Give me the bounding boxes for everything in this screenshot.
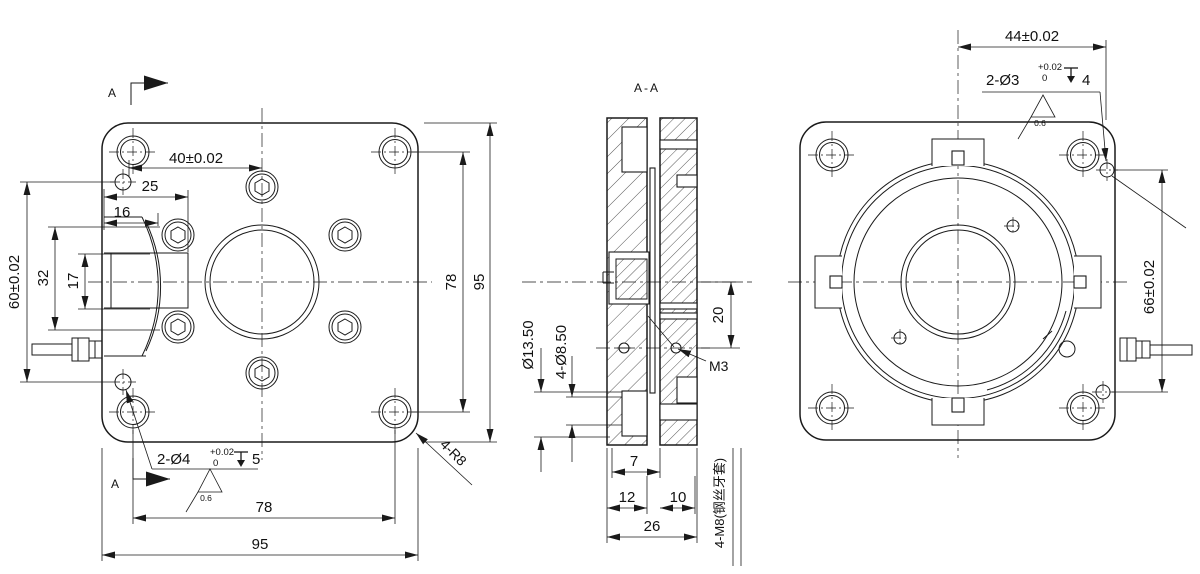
front-callout-tol-upper: +0.02 xyxy=(210,447,234,458)
dim-16-label: 16 xyxy=(114,204,131,221)
dim-40-label: 40±0.02 xyxy=(169,150,223,167)
dim-10-label: 10 xyxy=(670,489,687,506)
front-roughness-value: 0.6 xyxy=(200,493,212,503)
section-title: A-A xyxy=(634,81,660,95)
dim-78-right-label: 78 xyxy=(443,274,460,291)
dim-bore-label: Ø13.50 xyxy=(520,320,537,369)
side-roughness-value: 0.6 xyxy=(1034,118,1046,128)
dim-17-label: 17 xyxy=(65,273,82,290)
side-callout-depth: 4 xyxy=(1082,72,1090,89)
dim-60-label: 60±0.02 xyxy=(6,255,23,309)
front-callout-tol-lower: 0 xyxy=(213,458,218,469)
section-letter-bottom: A xyxy=(111,477,119,491)
front-callout-text: 2-Ø4 xyxy=(157,451,190,468)
dim-32-label: 32 xyxy=(35,270,52,287)
dim-66-label: 66±0.02 xyxy=(1141,260,1158,314)
insert-label: 4-M8(钢丝牙套) xyxy=(712,458,727,548)
dim-95-bottom-label: 95 xyxy=(252,536,269,553)
dim-7-label: 7 xyxy=(630,453,638,470)
section-letter-top: A xyxy=(108,86,116,100)
dim-95-right-label: 95 xyxy=(471,274,488,291)
front-callout-depth: 5 xyxy=(252,451,260,468)
dim-26-label: 26 xyxy=(644,518,661,535)
side-callout-tol-upper: +0.02 xyxy=(1038,62,1062,73)
dim-25-label: 25 xyxy=(142,178,159,195)
dim-holes-label: 4-Ø8.50 xyxy=(553,325,570,379)
engineering-drawing: 40±0.02 25 16 60±0.02 32 17 78 95 78 xyxy=(0,0,1200,574)
engineering-drawing-canvas: 40±0.02 25 16 60±0.02 32 17 78 95 78 xyxy=(0,0,1200,574)
dim-12-label: 12 xyxy=(619,489,636,506)
side-callout-tol-lower: 0 xyxy=(1042,73,1047,84)
side-callout-text: 2-Ø3 xyxy=(986,72,1019,89)
background xyxy=(0,0,1200,574)
dim-44-label: 44±0.02 xyxy=(1005,28,1059,45)
dim-20-label: 20 xyxy=(710,307,727,324)
dim-78-bottom-label: 78 xyxy=(256,499,273,516)
thread-label: M3 xyxy=(709,358,729,374)
